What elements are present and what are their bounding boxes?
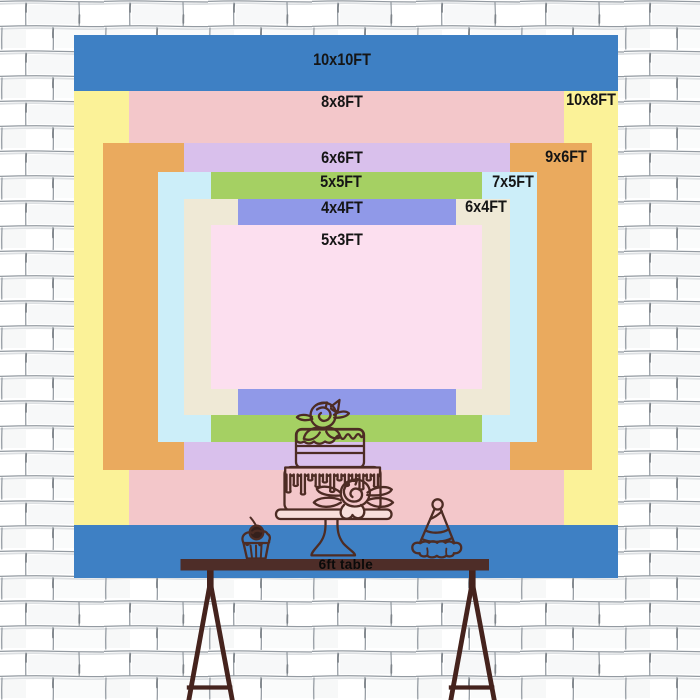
svg-text:6ft table: 6ft table: [319, 557, 374, 572]
